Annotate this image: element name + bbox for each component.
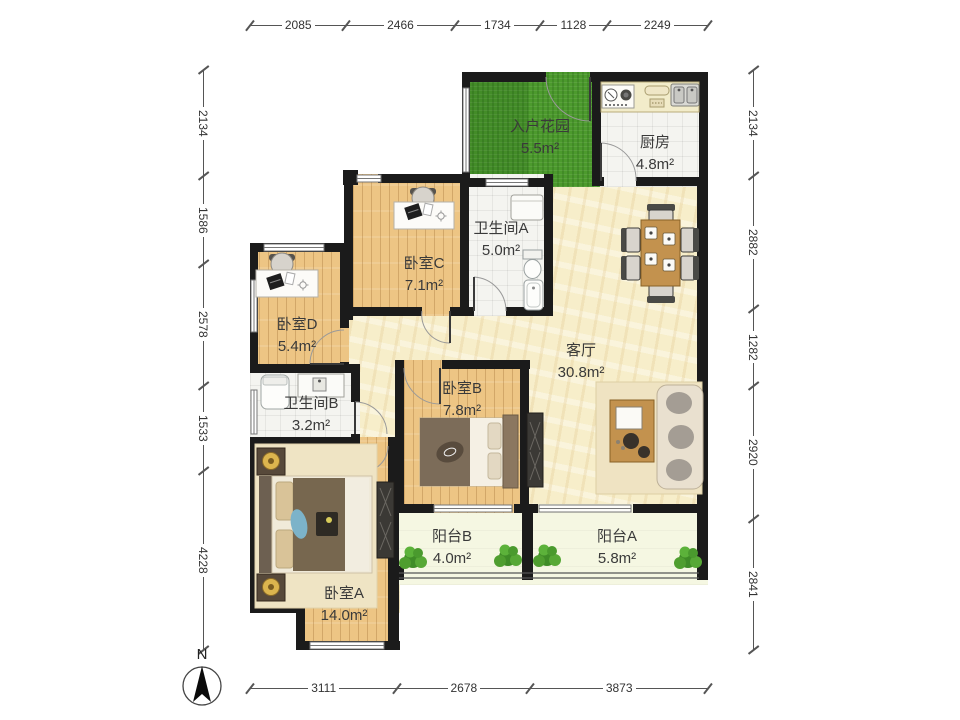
dimension-segment: 2578	[192, 264, 214, 386]
dimension-segment: 3873	[530, 677, 708, 699]
dimension-value: 1533	[196, 412, 210, 445]
dining-set	[621, 204, 699, 303]
kitchen-door-arc	[601, 143, 636, 181]
dimension-value: 3873	[603, 681, 636, 695]
dimension-chain-bottom: 311126783873	[250, 677, 708, 699]
dimension-segment: 2466	[346, 14, 454, 36]
room-label-bedroom-c: 卧室C7.1m²	[404, 253, 445, 297]
bath-b-door-arc	[355, 402, 387, 434]
room-label-living: 客厅30.8m²	[558, 340, 605, 384]
balcony-railing	[399, 573, 699, 578]
dimension-value: 4228	[196, 544, 210, 577]
tv-cabinet	[527, 413, 543, 487]
bed-b	[420, 415, 518, 488]
bathtub-icon	[524, 280, 543, 310]
dimension-segment: 2134	[192, 70, 214, 176]
dimension-segment: 1586	[192, 176, 214, 263]
dimension-value: 2920	[746, 436, 760, 469]
plan-drawing	[0, 0, 960, 720]
dimension-value: 1734	[481, 18, 514, 32]
dimension-value: 2249	[641, 18, 674, 32]
dimension-chain-left: 21341586257815334228	[192, 70, 214, 650]
compass-north-label: N	[197, 646, 208, 663]
bedroom-c-door-arc	[422, 311, 450, 343]
dimension-segment: 2920	[742, 386, 764, 520]
floor-plan: 入户花园5.5m² 厨房4.8m² 卧室C7.1m² 卫生间A5.0m² 卧室D…	[0, 0, 960, 720]
dimension-segment: 1734	[455, 14, 541, 36]
room-label-bedroom-d: 卧室D5.4m²	[277, 314, 318, 358]
room-label-bath-a: 卫生间A5.0m²	[473, 218, 528, 262]
room-label-balcony-b: 阳台B4.0m²	[432, 526, 472, 570]
room-label-garden: 入户花园5.5m²	[510, 116, 570, 160]
sink-icon	[671, 84, 699, 106]
dimension-value: 2134	[196, 107, 210, 140]
wardrobe-bedroom-a	[377, 482, 394, 558]
room-label-kitchen: 厨房4.8m²	[636, 132, 674, 176]
dimension-segment: 2134	[742, 70, 764, 176]
dimension-segment: 2882	[742, 176, 764, 308]
dimension-chain-right: 21342882128229202841	[742, 70, 764, 650]
dimension-value: 2678	[448, 681, 481, 695]
dimension-value: 2134	[746, 107, 760, 140]
bedroom-d-desk	[256, 253, 318, 297]
dimension-segment: 2841	[742, 519, 764, 650]
compass-icon	[183, 666, 221, 705]
headboard	[503, 415, 518, 488]
dimension-segment: 1282	[742, 309, 764, 386]
dimension-value: 2466	[384, 18, 417, 32]
kitchen-counter	[601, 82, 699, 112]
dimension-segment: 4228	[192, 471, 214, 650]
room-label-bath-b: 卫生间B3.2m²	[283, 393, 338, 437]
dimension-value: 2085	[282, 18, 315, 32]
bedroom-b-door-arc	[404, 368, 440, 404]
dimension-value: 3111	[308, 681, 339, 695]
headboard	[259, 476, 272, 573]
decor	[316, 512, 338, 536]
dimension-value: 2841	[746, 568, 760, 601]
dimension-value: 2578	[196, 308, 210, 341]
sofa-cushions	[666, 392, 694, 481]
washer-icon	[511, 195, 543, 220]
dimension-segment: 2085	[250, 14, 346, 36]
stove-icon	[602, 85, 634, 108]
dimension-segment: 2678	[397, 677, 530, 699]
room-label-bedroom-a: 卧室A14.0m²	[321, 583, 368, 627]
dimension-segment: 1128	[540, 14, 606, 36]
sofa-set	[596, 382, 703, 494]
dimension-segment: 2249	[607, 14, 708, 36]
dimension-chain-top: 20852466173411282249	[250, 14, 708, 36]
dimension-segment: 3111	[250, 677, 397, 699]
dimension-value: 1586	[196, 204, 210, 237]
bedroom-c-desk	[394, 187, 454, 229]
room-label-bedroom-b: 卧室B7.8m²	[442, 378, 482, 422]
entry-door-arc	[546, 77, 590, 121]
dimension-value: 1128	[557, 18, 589, 32]
dimension-value: 2882	[746, 226, 760, 259]
dimension-value: 1282	[746, 331, 760, 364]
bath-a-door-arc	[474, 277, 506, 311]
room-label-balcony-a: 阳台A5.8m²	[597, 526, 637, 570]
dimension-segment: 1533	[192, 386, 214, 472]
